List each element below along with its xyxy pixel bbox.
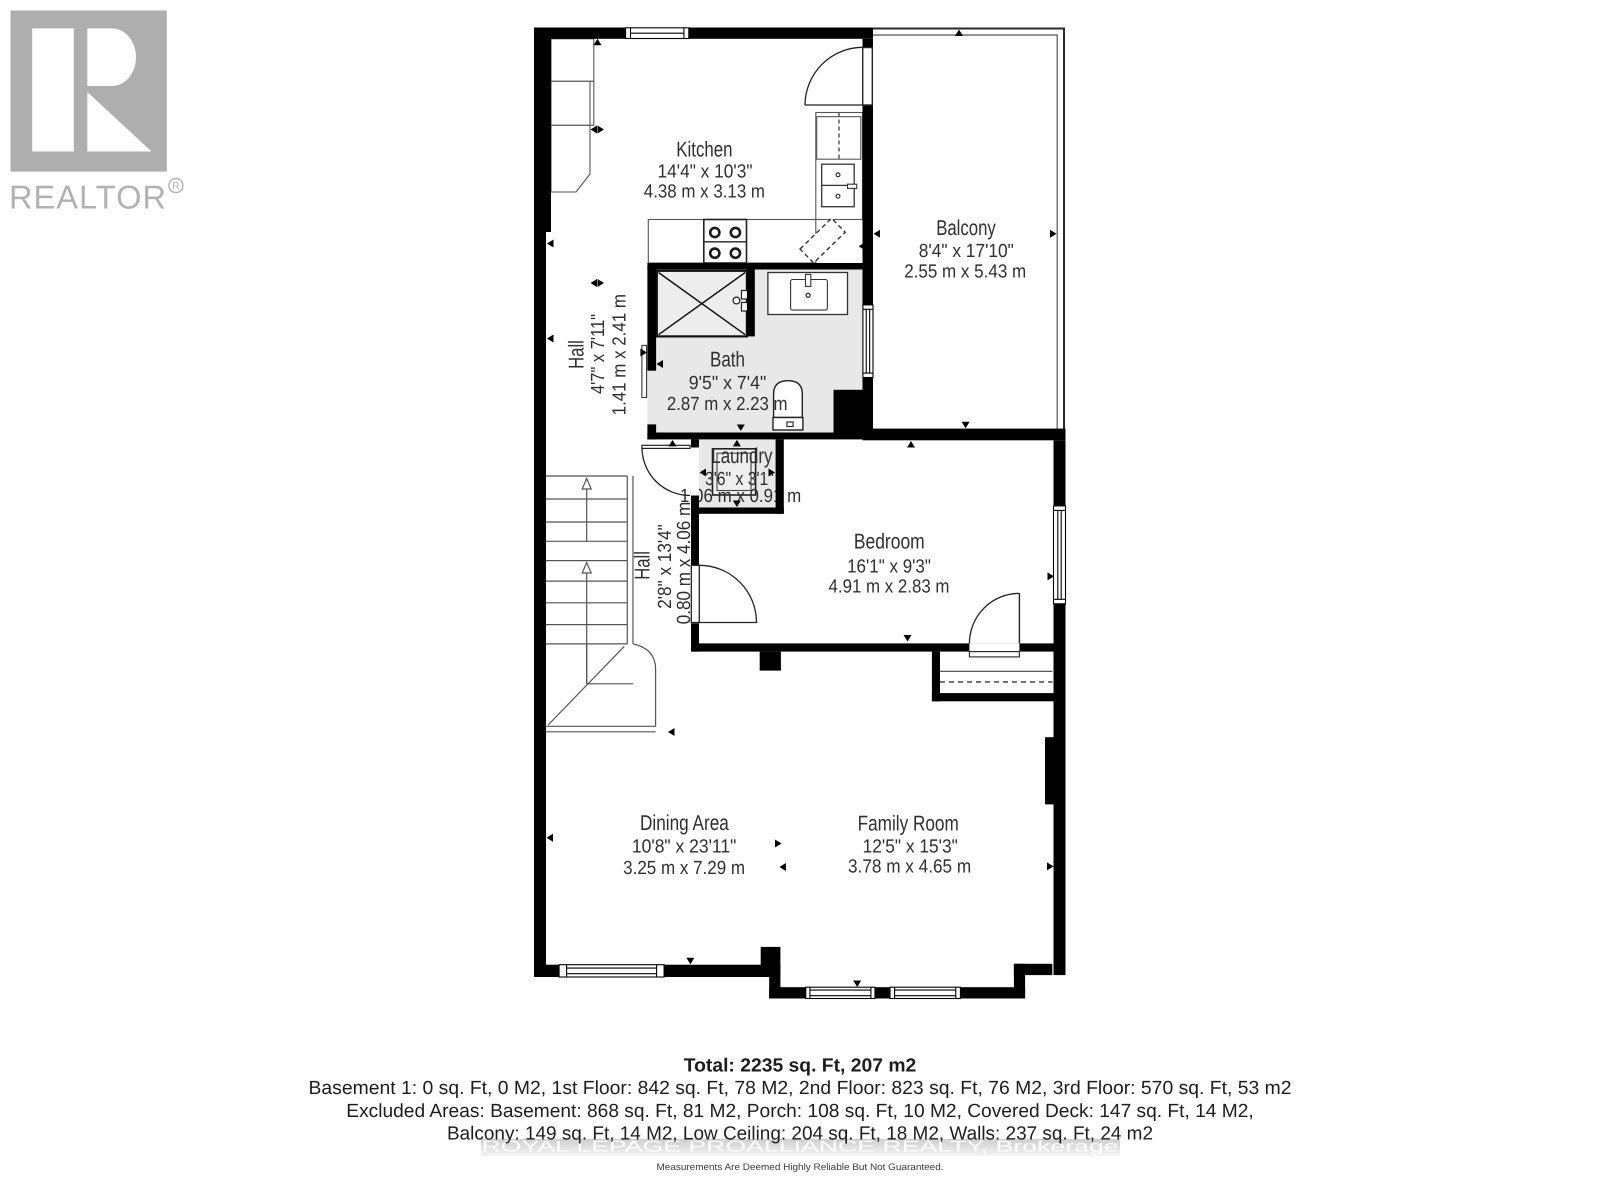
svg-text:Dining Area: Dining Area [640,811,729,835]
svg-text:3.78 m x 4.65 m: 3.78 m x 4.65 m [848,857,971,878]
svg-text:Measurements Are Deemed Highly: Measurements Are Deemed Highly Reliable … [657,1162,944,1173]
svg-text:10'8" x 23'11": 10'8" x 23'11" [632,837,736,858]
svg-text:Basement 1: 0 sq. Ft, 0 M2, 1s: Basement 1: 0 sq. Ft, 0 M2, 1st Floor: 8… [309,1078,1292,1099]
svg-text:4.91 m x 2.83 m: 4.91 m x 2.83 m [829,577,950,598]
svg-text:Hall: Hall [631,551,655,580]
svg-text:14'4" x 10'3": 14'4" x 10'3" [658,162,753,183]
svg-text:2'8" x 13'4": 2'8" x 13'4" [655,524,676,609]
svg-text:Excluded Areas: Basement: 868: Excluded Areas: Basement: 868 sq. Ft, 81… [346,1101,1253,1122]
svg-text:4.38 m x 3.13 m: 4.38 m x 3.13 m [644,182,765,203]
svg-text:8'4" x 17'10": 8'4" x 17'10" [919,241,1014,262]
svg-text:REALTOR: REALTOR [9,179,167,216]
svg-text:Bath: Bath [710,347,745,371]
svg-text:4'7" x 7'11": 4'7" x 7'11" [588,314,609,394]
svg-text:Bedroom: Bedroom [854,530,925,554]
svg-text:12'5" x 15'3": 12'5" x 15'3" [863,836,958,857]
svg-text:Hall: Hall [564,340,588,369]
svg-text:Total: 2235 sq. Ft, 207 m2: Total: 2235 sq. Ft, 207 m2 [684,1055,917,1076]
svg-text:R: R [172,181,179,192]
svg-text:Kitchen: Kitchen [676,137,732,161]
svg-text:16'1" x 9'3": 16'1" x 9'3" [847,556,931,577]
svg-text:Family Room: Family Room [858,811,959,835]
svg-text:Balcony: 149 sq. Ft, 14 M2, Lo: Balcony: 149 sq. Ft, 14 M2, Low Ceiling:… [447,1124,1153,1145]
svg-text:2.55 m x 5.43 m: 2.55 m x 5.43 m [904,262,1026,283]
svg-text:1.41 m x 2.41 m: 1.41 m x 2.41 m [609,294,630,415]
svg-text:9'5" x 7'4": 9'5" x 7'4" [689,373,767,394]
svg-text:Balcony: Balcony [936,216,996,240]
svg-text:3.25 m x 7.29 m: 3.25 m x 7.29 m [623,858,745,879]
svg-text:Laundry: Laundry [711,444,772,468]
svg-text:2.87 m x 2.23 m: 2.87 m x 2.23 m [667,394,788,415]
